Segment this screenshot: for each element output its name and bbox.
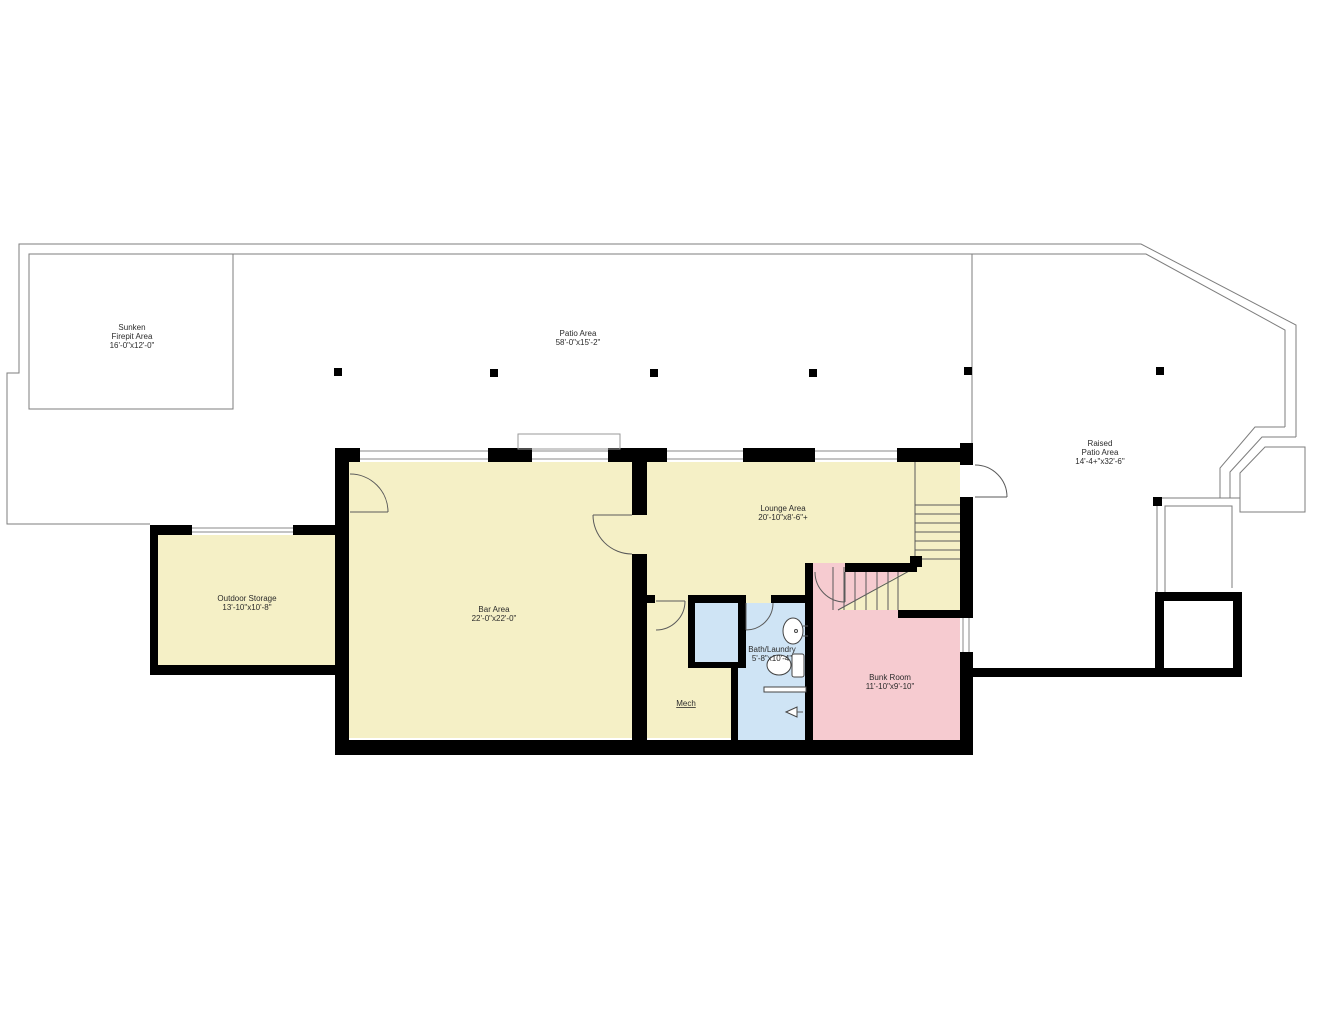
svg-text:Patio Area: Patio Area xyxy=(1082,448,1119,457)
sink-icon xyxy=(783,618,803,644)
floor-plan-drawing: Sunken Firepit Area 16'-0"x12'-0" Patio … xyxy=(0,0,1325,1024)
svg-text:Mech: Mech xyxy=(676,699,696,708)
counter-icon xyxy=(764,687,806,692)
svg-text:Outdoor Storage: Outdoor Storage xyxy=(217,594,277,603)
floor-plan-page: Sunken Firepit Area 16'-0"x12'-0" Patio … xyxy=(0,0,1325,1024)
svg-text:Patio Area: Patio Area xyxy=(560,329,597,338)
svg-text:14'-4+"x32'-6": 14'-4+"x32'-6" xyxy=(1075,457,1125,466)
svg-text:11'-10"x9'-10": 11'-10"x9'-10" xyxy=(866,682,915,691)
svg-text:5'-8"x10'-4": 5'-8"x10'-4" xyxy=(752,654,792,663)
patio-label: Patio Area 58'-0"x15'-2" xyxy=(556,329,601,347)
sunken-firepit-label: Sunken Firepit Area 16'-0"x12'-0" xyxy=(110,323,155,350)
svg-text:Bunk Room: Bunk Room xyxy=(869,673,911,682)
svg-text:16'-0"x12'-0": 16'-0"x12'-0" xyxy=(110,341,155,350)
patio-posts xyxy=(334,367,1164,377)
raised-patio-landing xyxy=(1153,497,1240,592)
right-walled-box xyxy=(973,592,1242,677)
laundry-closet-fill xyxy=(695,603,738,662)
svg-text:Bar Area: Bar Area xyxy=(478,605,510,614)
bay-window-outline xyxy=(518,434,620,449)
svg-text:Lounge Area: Lounge Area xyxy=(760,504,806,513)
svg-text:Raised: Raised xyxy=(1088,439,1113,448)
svg-text:Sunken: Sunken xyxy=(118,323,145,332)
mech-label: Mech xyxy=(676,699,696,708)
raised-patio-door xyxy=(975,465,1007,497)
toilet-tank-icon xyxy=(792,654,804,677)
bath-laundry-label: Bath/Laundry 5'-8"x10'-4" xyxy=(748,645,796,663)
lounge-area-label: Lounge Area 20'-10"x8'-6"+ xyxy=(758,504,808,522)
raised-patio-label: Raised Patio Area 14'-4+"x32'-6" xyxy=(1075,439,1125,466)
svg-text:20'-10"x8'-6"+: 20'-10"x8'-6"+ xyxy=(758,513,808,522)
bath-fill-lower xyxy=(738,668,746,740)
svg-text:13'-10"x10'-8": 13'-10"x10'-8" xyxy=(222,603,271,612)
outdoor-storage-label: Outdoor Storage 13'-10"x10'-8" xyxy=(217,594,277,612)
svg-text:Firepit Area: Firepit Area xyxy=(112,332,153,341)
raised-patio-steps xyxy=(972,254,1305,512)
svg-text:58'-0"x15'-2": 58'-0"x15'-2" xyxy=(556,338,601,347)
svg-text:22'-0"x22'-0": 22'-0"x22'-0" xyxy=(472,614,517,623)
svg-text:Bath/Laundry: Bath/Laundry xyxy=(748,645,796,654)
room-fills xyxy=(158,462,960,740)
bunk-room-label: Bunk Room 11'-10"x9'-10" xyxy=(866,673,915,691)
